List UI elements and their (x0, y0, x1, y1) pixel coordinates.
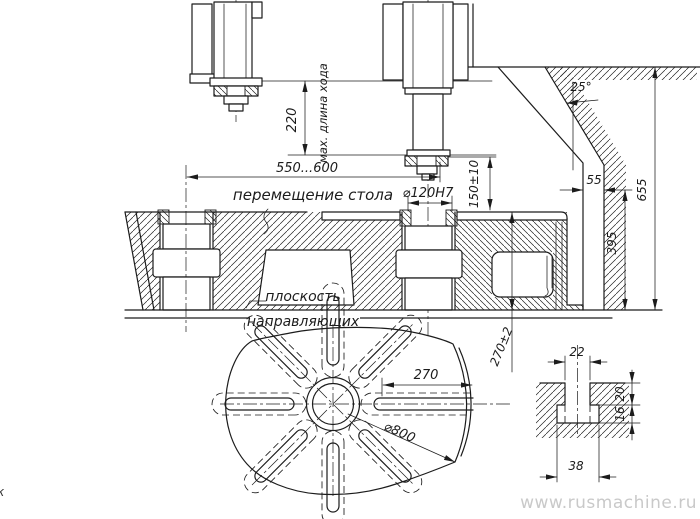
tslot-d1-label: 20 (613, 386, 627, 402)
travel-dim-label: 550...600 (276, 161, 338, 176)
table-height-label: 270±2 (487, 325, 515, 368)
dim-table-dia: ⌀800 (348, 414, 455, 462)
left-spindle-nose (210, 78, 262, 111)
angle-label: 25° (570, 80, 591, 94)
dim-spindle-bore: ⌀120H7 (403, 186, 454, 211)
tslot-d2-label: 16 (613, 406, 627, 422)
edge-mark: к (0, 485, 5, 499)
travel-note-label: перемещение стола (233, 186, 393, 204)
total-height-label: 655 (635, 179, 649, 202)
tslot-bottom-label: 38 (568, 459, 584, 473)
left-tbolt (153, 165, 220, 332)
offset-label: 55 (586, 173, 601, 187)
left-spindle (190, 0, 262, 122)
spindle-height-label: 150±10 (467, 160, 481, 209)
stroke-dim-label: 220 (285, 108, 300, 133)
slot-length-label: 270 (414, 368, 439, 383)
drawing-page: плоскость направляющих 220 мах. длина хо… (0, 0, 700, 519)
dim-stroke-220: 220 мах. длина хода (285, 63, 330, 163)
dim-slot-270: 270 (382, 368, 472, 396)
stroke-note-label: мах. длина хода (316, 63, 330, 163)
spindle-socket (396, 210, 462, 310)
tslot-detail: 22 20 16 38 (536, 345, 640, 482)
spindle-bore-label: ⌀120H7 (403, 186, 454, 201)
column-height-label: 395 (605, 232, 619, 255)
right-spindle-nose (405, 150, 450, 180)
machine-drawing: плоскость направляющих 220 мах. длина хо… (0, 0, 700, 519)
dim-spindle-height: 150±10 (448, 157, 496, 210)
tslot-top-label: 22 (569, 345, 584, 359)
watermark: www.rusmachine.ru (520, 493, 697, 513)
